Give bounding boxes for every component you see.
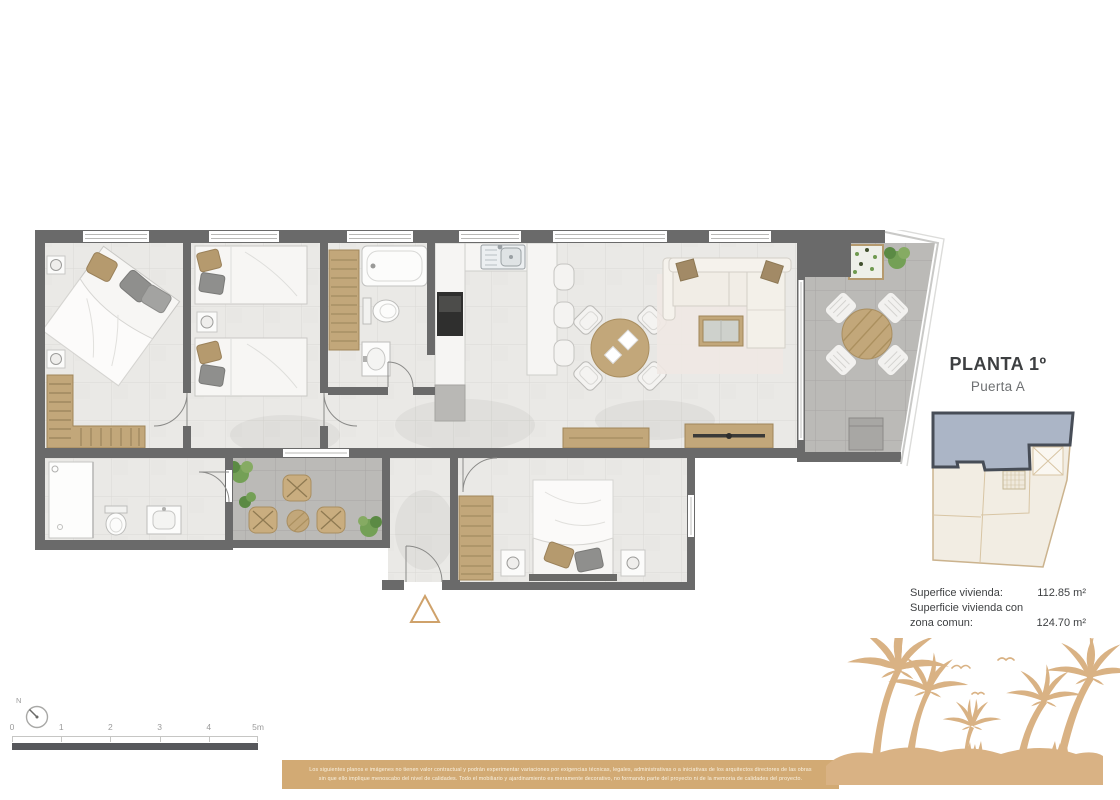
area-row: zona comun: 124.70 m² xyxy=(910,616,1086,631)
bathtub-icon xyxy=(362,246,427,286)
bedroom3-window xyxy=(688,495,694,537)
page-title: PLANTA 1º xyxy=(900,354,1096,375)
hall-wardrobe-icon xyxy=(329,250,359,350)
terrace-glass-door xyxy=(799,280,804,440)
disclaimer-line-1: Los siguientes planos e imágenes no tien… xyxy=(282,767,839,774)
shower-icon xyxy=(49,462,93,538)
kitchen-island xyxy=(527,243,557,375)
scale-label: 5m xyxy=(252,722,264,732)
title-block: PLANTA 1º Puerta A xyxy=(900,354,1096,394)
washbasin-icon xyxy=(147,506,181,534)
double-bed-icon xyxy=(529,480,617,581)
tv-unit-icon xyxy=(685,424,773,448)
birds-icon xyxy=(952,658,1014,694)
bar-stool-icon xyxy=(554,264,574,366)
scale-label: 3 xyxy=(157,722,162,732)
nightstand-icon xyxy=(197,312,217,332)
toilet-icon xyxy=(105,506,127,535)
planter-icon xyxy=(849,245,883,279)
scale-label: 1 xyxy=(59,722,64,732)
palm-trees-illustration xyxy=(826,638,1120,800)
scale-label: 0 xyxy=(10,722,15,732)
north-label: N xyxy=(16,696,21,705)
wardrobe-icon xyxy=(459,496,493,580)
terrace-wall-stub xyxy=(805,243,851,277)
scale-label: 4 xyxy=(206,722,211,732)
single-bed-icon xyxy=(195,338,307,396)
disclaimer-banner: Los siguientes planos e imágenes no tien… xyxy=(282,760,839,789)
stairs-icon xyxy=(1033,447,1063,475)
entry-marker-icon xyxy=(411,596,439,622)
sink-icon xyxy=(481,245,525,269)
page-subtitle: Puerta A xyxy=(900,379,1096,394)
scale-label: 2 xyxy=(108,722,113,732)
dining-table-icon xyxy=(591,319,649,377)
single-bed-icon xyxy=(195,246,307,304)
elevator-icon xyxy=(1003,471,1025,489)
patio-slider xyxy=(283,449,349,457)
sideboard-icon xyxy=(563,428,649,448)
ac-unit-icon xyxy=(849,418,883,450)
washbasin-icon xyxy=(362,342,390,376)
disclaimer-line-2: sin que ello implique menoscabo del nive… xyxy=(282,776,839,783)
area-row: Superfice vivienda: 112.85 m² xyxy=(910,586,1086,601)
scale-bar-fill xyxy=(12,743,258,750)
scale-bar: 0 1 2 3 4 5m xyxy=(12,722,260,756)
coffee-table-icon xyxy=(699,316,743,346)
floor-plan xyxy=(35,230,947,630)
area-row: Superficie vivienda con xyxy=(910,601,1086,616)
area-summary: Superfice vivienda: 112.85 m² Superficie… xyxy=(910,586,1086,631)
floor-plan-sheet: PLANTA 1º Puerta A Superfice vivienda: 1… xyxy=(0,0,1120,800)
location-key-plan xyxy=(925,403,1095,578)
toilet-icon xyxy=(363,298,399,324)
